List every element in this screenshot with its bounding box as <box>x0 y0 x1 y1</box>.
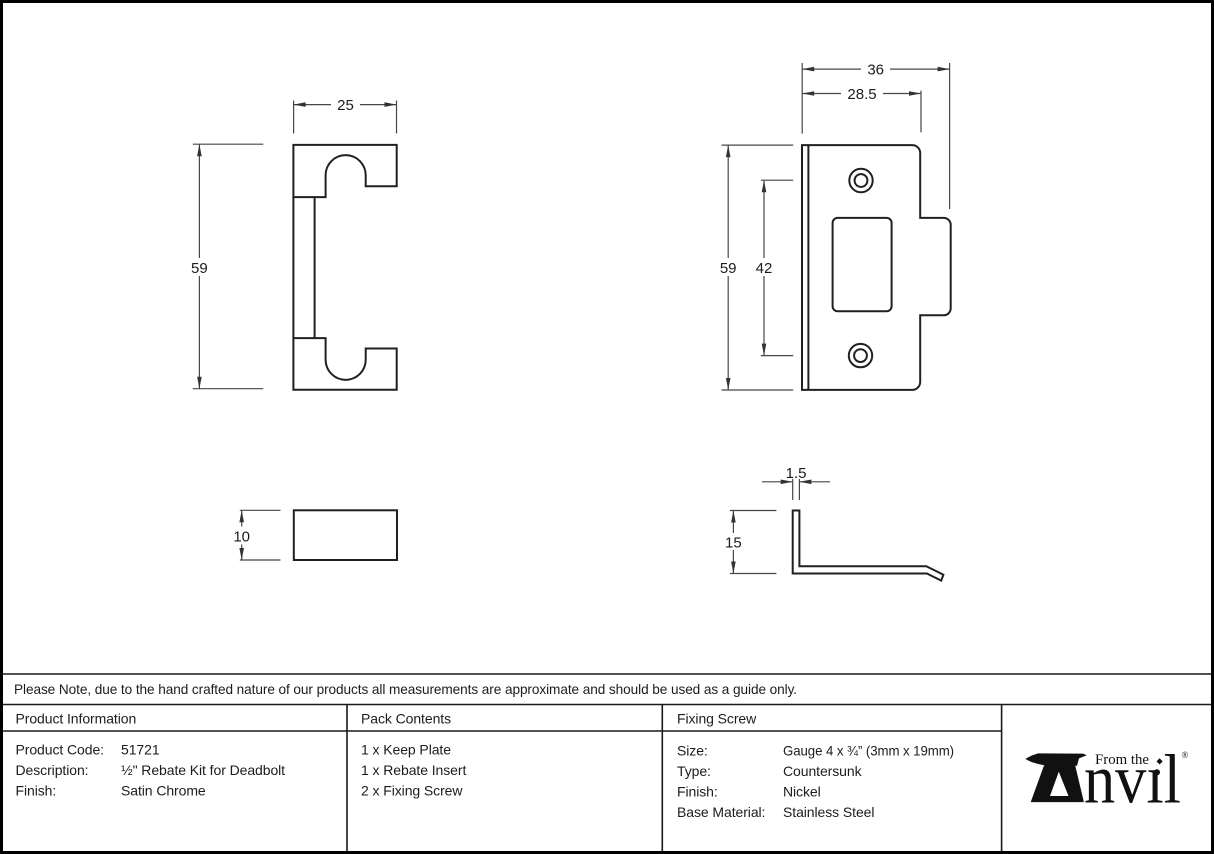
svg-text:36: 36 <box>867 62 884 79</box>
svg-text:nvıl: nvıl <box>1084 742 1181 819</box>
svg-text:2 x Fixing Screw: 2 x Fixing Screw <box>361 783 463 799</box>
svg-text:10: 10 <box>233 528 250 545</box>
svg-text:Nickel: Nickel <box>783 784 821 800</box>
svg-text:Finish:: Finish: <box>677 784 718 800</box>
svg-text:1 x Rebate Insert: 1 x Rebate Insert <box>361 762 466 778</box>
svg-text:1.5: 1.5 <box>786 465 807 482</box>
svg-text:28.5: 28.5 <box>847 86 876 103</box>
svg-text:25: 25 <box>337 97 354 114</box>
svg-text:Pack Contents: Pack Contents <box>361 711 451 727</box>
svg-text:Fixing Screw: Fixing Screw <box>677 711 757 727</box>
svg-text:59: 59 <box>720 260 737 277</box>
svg-text:51721: 51721 <box>121 742 160 758</box>
svg-text:Gauge 4 x ¾” (3mm x 19mm): Gauge 4 x ¾” (3mm x 19mm) <box>783 743 954 759</box>
svg-text:Base Material:: Base Material: <box>677 804 765 820</box>
svg-text:Finish:: Finish: <box>16 783 57 799</box>
svg-text:Countersunk: Countersunk <box>783 763 863 779</box>
svg-text:½" Rebate Kit for Deadbolt: ½" Rebate Kit for Deadbolt <box>121 762 285 778</box>
svg-text:Please Note, due to the hand c: Please Note, due to the hand crafted nat… <box>14 681 797 697</box>
svg-text:Size:: Size: <box>677 743 708 759</box>
svg-text:1 x Keep Plate: 1 x Keep Plate <box>361 742 451 758</box>
svg-text:Product Information: Product Information <box>16 711 137 727</box>
svg-text:Product Code:: Product Code: <box>16 742 104 758</box>
svg-text:59: 59 <box>191 260 208 277</box>
svg-text:Stainless Steel: Stainless Steel <box>783 804 874 820</box>
svg-text:Satin Chrome: Satin Chrome <box>121 783 206 799</box>
svg-text:Type:: Type: <box>677 763 711 779</box>
svg-text:®: ® <box>1182 750 1189 760</box>
svg-text:Description:: Description: <box>16 762 89 778</box>
svg-text:42: 42 <box>756 260 773 277</box>
svg-text:15: 15 <box>725 534 742 551</box>
